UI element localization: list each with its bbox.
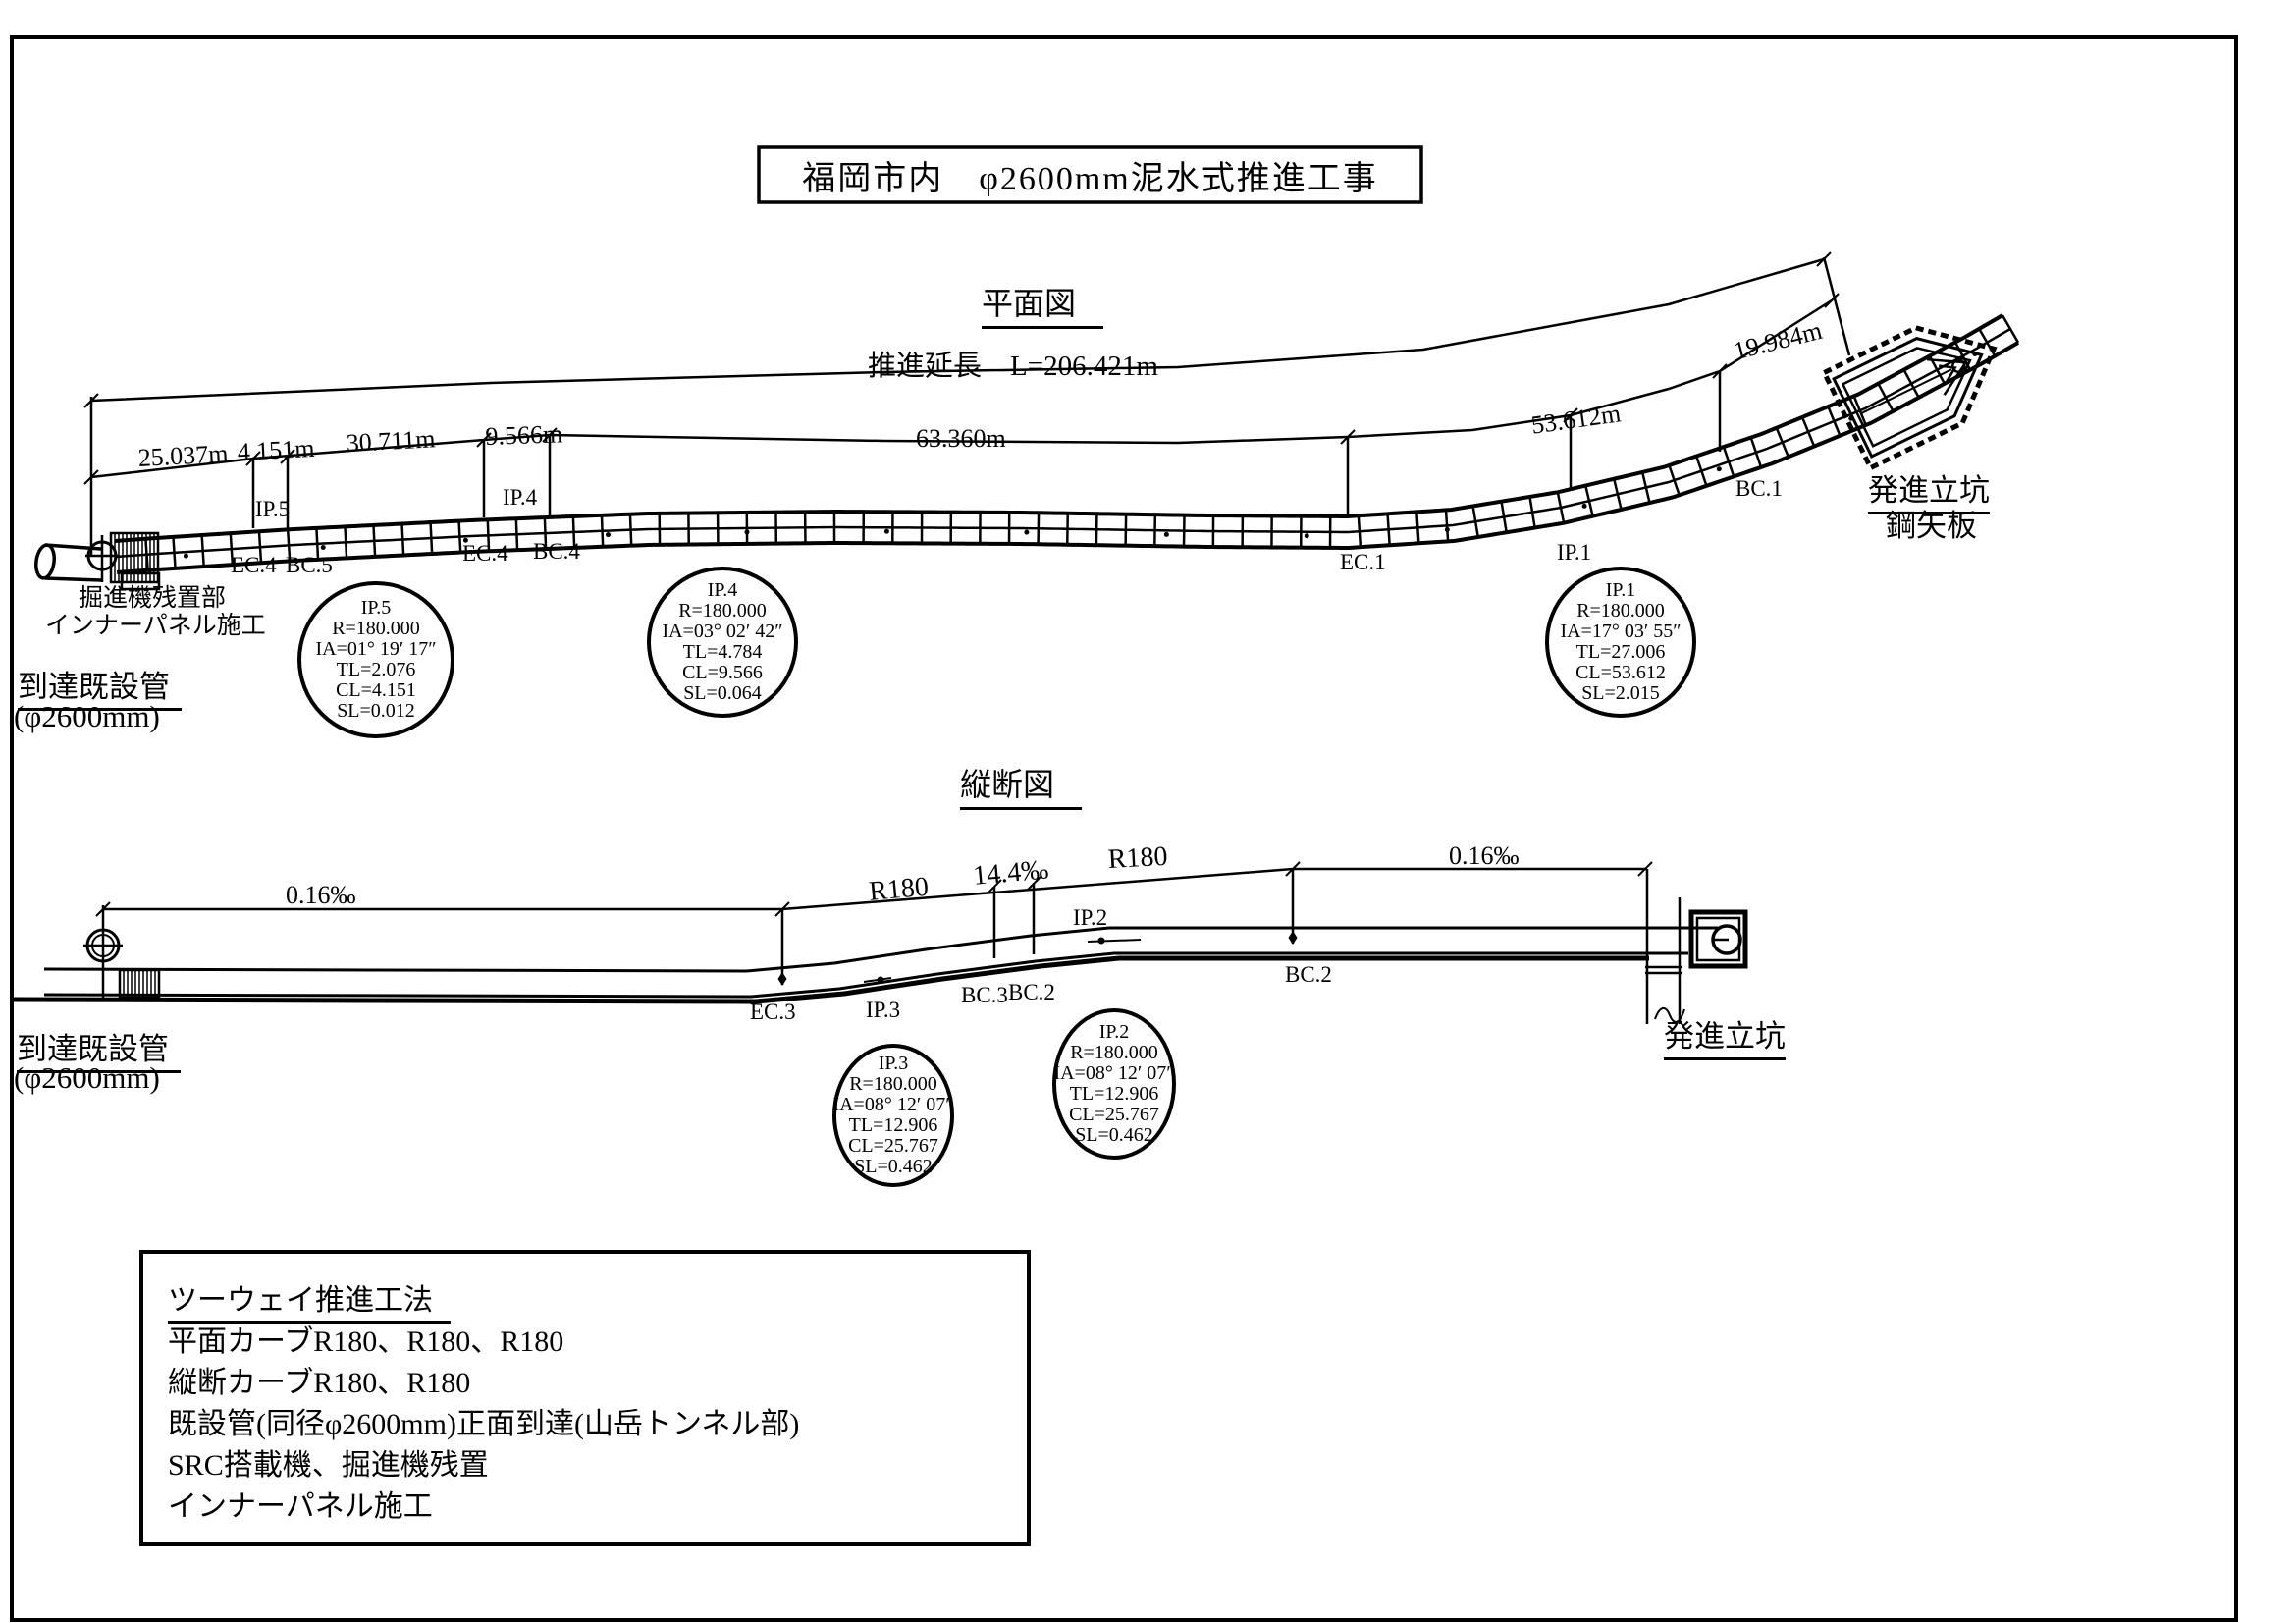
ip-data-line: TL=27.006 [1576,642,1666,663]
profile-grade-mid: 14.4‰ [972,854,1049,893]
drawing-sheet: 福岡市内 φ2600mm泥水式推進工事 平面図 推進延長 L=206.421m … [0,0,2296,1623]
ip-data-line: CL=9.566 [682,663,763,683]
profile-point-bc2a: BC.2 [1008,980,1055,1005]
ip-data-line: IP.2 [1099,1022,1130,1043]
plan-arrival-pipe-diameter: (φ2600mm) [14,699,160,734]
ip-data-line: TL=2.076 [337,660,416,680]
plan-point-ec4b: EC.4 [462,541,508,567]
profile-point-ec3: EC.3 [750,1000,796,1025]
ip-data-line: CL=53.612 [1575,663,1666,683]
plan-point-ip4: IP.4 [503,485,537,511]
ip-data-line: SL=0.462 [1075,1125,1153,1146]
plan-point-ec1: EC.1 [1340,550,1386,575]
plan-point-bc5: BC.5 [286,553,333,578]
ip-data-line: TL=12.906 [1070,1084,1159,1105]
method-notes-box: ツーウェイ推進工法 平面カーブR180、R180、R180 縦断カーブR180、… [139,1250,1031,1546]
profile-arrival-pipe-diameter: (φ2600mm) [14,1060,160,1096]
plan-total-length-label: 推進延長 L=206.421m [868,343,1158,384]
ip-data-line: R=180.000 [332,619,420,639]
ip-data-line: IA=08° 12′ 07″ [832,1095,953,1115]
ip-data-line: IA=08° 12′ 07″ [1053,1063,1174,1084]
ip-data-line: R=180.000 [678,601,767,622]
plan-dim-25037: 25.037m [137,439,229,473]
ip-data-line: IP.4 [708,580,738,601]
ip-data-line: TL=4.784 [683,642,763,663]
notes-line-5: インナーパネル施工 [168,1482,433,1525]
plan-launch-shaft-sub: 鋼矢板 [1886,501,1977,545]
plan-point-bc1: BC.1 [1735,476,1783,502]
notes-line-2: 縦断カーブR180、R180 [168,1358,470,1401]
profile-grade-right: 0.16‰ [1449,841,1520,871]
profile-radius-right: R180 [1107,841,1168,876]
profile-point-bc3: BC.3 [961,983,1008,1008]
plan-ip4-data-circle: IP.4 R=180.000 IA=03° 02′ 42″ TL=4.784 C… [647,567,798,718]
ip-data-line: CL=25.767 [1069,1105,1159,1125]
notes-line-3: 既設管(同径φ2600mm)正面到達(山岳トンネル部) [168,1399,799,1442]
notes-line-1: 平面カーブR180、R180、R180 [168,1317,563,1360]
profile-grade-left: 0.16‰ [286,881,356,910]
ip-data-line: IA=03° 02′ 42″ [662,622,782,642]
plan-launch-shaft [1824,301,2017,468]
profile-point-bc2b: BC.2 [1285,962,1332,988]
ip-data-line: IA=17° 03′ 55″ [1560,622,1681,642]
ip-data-line: TL=12.906 [849,1115,938,1136]
ip-data-line: IP.3 [879,1054,909,1074]
plan-point-ip1: IP.1 [1557,540,1591,566]
profile-launch-shaft-label: 発進立坑 [1664,1011,1786,1060]
ip-data-line: R=180.000 [1576,601,1665,622]
ip-data-line: R=180.000 [1070,1043,1158,1063]
plan-ip1-data-circle: IP.1 R=180.000 IA=17° 03′ 55″ TL=27.006 … [1545,567,1696,718]
ip-data-line: IP.5 [361,598,392,619]
notes-line-4: SRC搭載機、掘進機残置 [168,1440,489,1484]
ip-data-line: SL=0.462 [854,1157,933,1177]
ip-data-line: IA=01° 19′ 17″ [315,639,436,660]
plan-point-ec4a: EC.4 [231,553,277,578]
ip-data-line: IP.1 [1606,580,1636,601]
plan-machine-note-2: インナーパネル施工 [45,606,266,641]
plan-point-bc4: BC.4 [533,539,580,565]
ip-data-line: SL=0.064 [683,683,762,704]
ip-data-line: R=180.000 [849,1074,937,1095]
ip-data-line: SL=0.012 [337,701,415,722]
plan-ip5-data-circle: IP.5 R=180.000 IA=01° 19′ 17″ TL=2.076 C… [297,581,454,738]
existing-pipe-end-cap [34,544,57,579]
profile-radius-left: R180 [868,872,930,908]
ip-data-line: CL=4.151 [336,680,416,701]
profile-heading: 縦断図 [960,760,1082,810]
drawing-title: 福岡市内 φ2600mm泥水式推進工事 [759,147,1421,202]
plan-dim-30711: 30.711m [346,424,436,459]
plan-dim-63360: 63.360m [916,424,1006,454]
profile-ip3-data-circle: IP.3 R=180.000 IA=08° 12′ 07″ TL=12.906 … [832,1044,954,1187]
plan-dim-9566: 9.566m [485,419,563,452]
ip-data-line: SL=2.015 [1581,683,1660,704]
profile-point-ip3: IP.3 [866,998,900,1023]
profile-point-ip2: IP.2 [1073,905,1107,931]
ip-data-line: CL=25.767 [848,1136,938,1157]
profile-ip2-data-circle: IP.2 R=180.000 IA=08° 12′ 07″ TL=12.906 … [1052,1008,1176,1160]
plan-dim-4151: 4.151m [237,434,315,467]
plan-point-ip5: IP.5 [255,497,290,522]
plan-heading: 平面図 [982,279,1103,329]
